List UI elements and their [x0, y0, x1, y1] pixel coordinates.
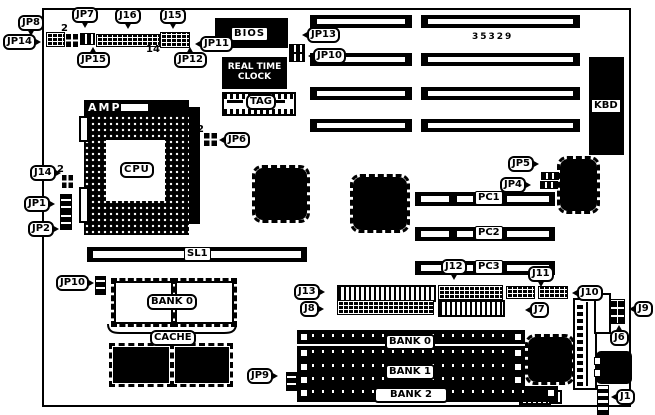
pc2-stripe: [421, 231, 449, 237]
rtc-chip: REAL TIME CLOCK: [222, 57, 287, 89]
pc1-label: PC1: [475, 191, 503, 205]
bank2-label: BANK 2: [374, 387, 448, 403]
callout-j7: J7: [530, 302, 549, 318]
pc2-stripe: [457, 231, 473, 237]
callout-jp11: JP11: [200, 36, 233, 52]
callout-j15: J15: [160, 8, 186, 24]
callout-jp8: JP8: [18, 15, 44, 31]
pc1-stripe: [507, 196, 549, 202]
din-connector: [596, 351, 632, 384]
callout-j16: J16: [115, 8, 141, 24]
callout-jp10-bottom: JP10: [56, 275, 89, 291]
tag-label: TAG: [246, 94, 276, 110]
j7-header: [438, 300, 505, 317]
cpu-socket-amp-bar: AMP: [84, 100, 189, 115]
callout-jp5: JP5: [508, 156, 534, 172]
cpu-socket-tab-lower: [79, 187, 89, 223]
j8-header: [337, 300, 434, 315]
j16-pin-number: 14: [146, 44, 160, 55]
cpu-label: CPU: [120, 162, 154, 178]
tag-chip-pin-left: [227, 100, 243, 103]
cache-label: CACHE: [150, 330, 196, 346]
cache-chip-black-2: [175, 347, 229, 383]
jp15-pin-number: 2: [61, 23, 68, 34]
pci-slot-pc2: PC2: [415, 227, 555, 241]
qfp-chip-4: [528, 337, 572, 382]
callout-j12: J12: [441, 259, 467, 275]
callout-j13: J13: [294, 284, 320, 300]
callout-j6: J6: [610, 330, 629, 346]
rtc-label-line2: CLOCK: [222, 72, 287, 82]
pc2-label: PC2: [475, 226, 503, 240]
jp10-top-jumper: [289, 53, 305, 62]
cpu-socket-tab-upper: [79, 116, 89, 142]
isa-slot-7: [310, 119, 412, 132]
callout-jp6: JP6: [224, 132, 250, 148]
isa-slot-5: [310, 87, 412, 100]
callout-j1: J1: [616, 389, 635, 405]
jp8-jp14-jumper: [46, 32, 65, 47]
j12-header: [438, 285, 503, 300]
pc3-label: PC3: [475, 260, 503, 274]
callout-j8: J8: [300, 301, 319, 317]
bank1-label: BANK 1: [385, 364, 435, 380]
isa-slot-4: [421, 53, 580, 66]
callout-j14: J14: [30, 165, 56, 181]
cache-bank0-label: BANK 0: [147, 294, 197, 310]
bios-label: BIOS: [231, 27, 268, 41]
jp4-jumper: [540, 181, 558, 189]
sl1-label: SL1: [184, 247, 211, 261]
sl1-slot: SL1: [87, 247, 307, 262]
isa-slot-2: [421, 15, 580, 28]
callout-j11: J11: [528, 266, 554, 282]
callout-jp2: JP2: [28, 221, 54, 237]
callout-jp15: JP15: [77, 52, 110, 68]
motherboard-diagram: 35329 KBD BIOS REAL TIME CLOCK TAG JP13 …: [0, 0, 655, 415]
jp1-jumper: [60, 194, 72, 214]
jp15-jumper: [66, 34, 78, 47]
jp9-jumper: [286, 372, 297, 391]
jp5-jumper: [541, 172, 559, 180]
kbd-label: KBD: [591, 99, 621, 113]
pci-slot-pc1: PC1: [415, 192, 555, 206]
bank0-label: BANK 0: [385, 334, 435, 350]
callout-jp4: JP4: [500, 177, 526, 193]
amp-label: AMP: [88, 101, 122, 114]
isa-slot-8: [421, 119, 580, 132]
pc1-stripe: [421, 196, 449, 202]
qfp-chip-1: [255, 168, 307, 220]
jp6-pin-number: 2: [197, 124, 204, 135]
callout-j9: J9: [634, 301, 653, 317]
pc1-stripe: [457, 196, 473, 202]
jp13-jumper: [289, 44, 305, 53]
qfp-chip-3: [560, 159, 597, 211]
j11-header: [506, 286, 535, 299]
rtc-label-line1: REAL TIME: [222, 62, 287, 72]
callout-jp1: JP1: [24, 196, 50, 212]
callout-jp7: JP7: [72, 7, 98, 23]
callout-jp10-top: JP10: [313, 48, 346, 64]
callout-jp14: JP14: [3, 34, 36, 50]
qfp-chip-2: [353, 177, 407, 230]
pc2-stripe: [507, 231, 549, 237]
cache-chip-black-1: [113, 347, 169, 383]
callout-jp9: JP9: [247, 368, 273, 384]
callout-jp12: JP12: [174, 52, 207, 68]
isa-slot-6: [421, 87, 580, 100]
part-number: 35329: [472, 32, 513, 42]
amp-bar-slot: [121, 104, 148, 111]
callout-j10: J10: [577, 285, 603, 301]
callout-jp13: JP13: [307, 27, 340, 43]
